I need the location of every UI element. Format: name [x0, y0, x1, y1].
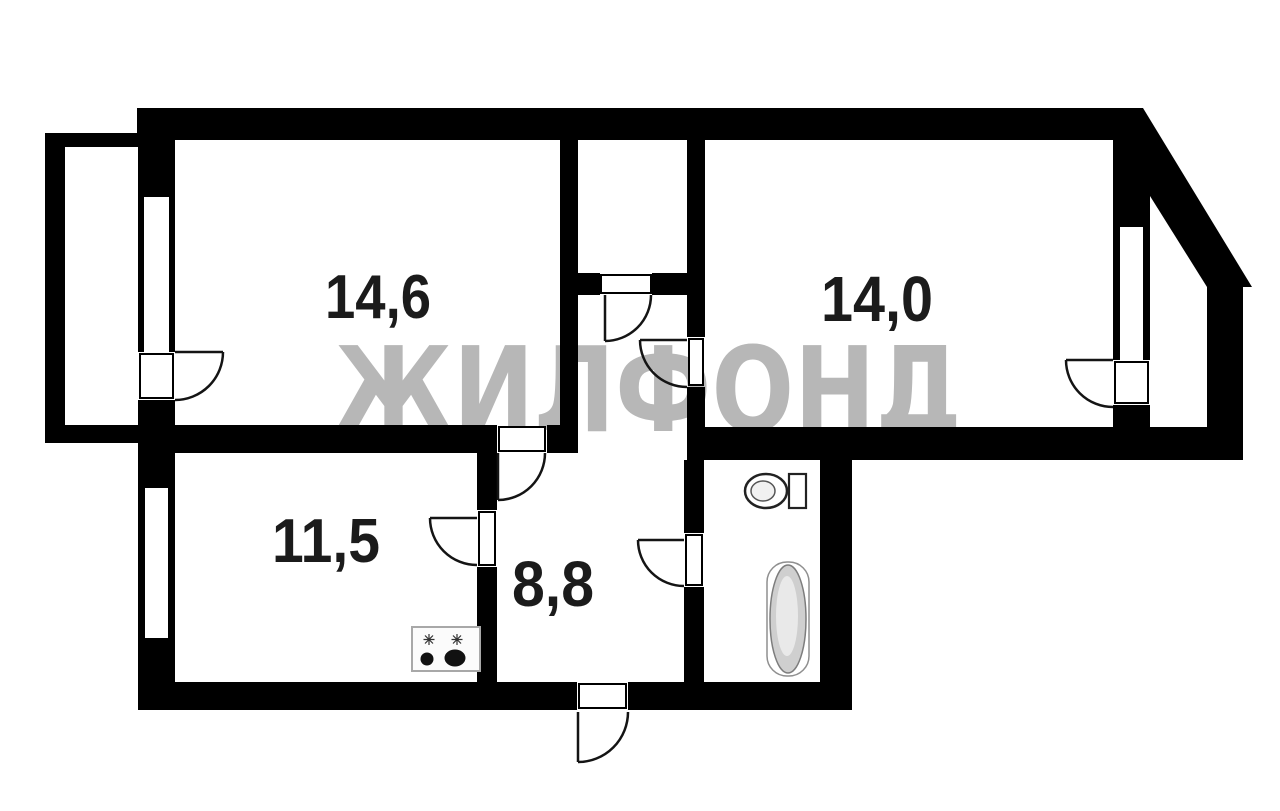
- wall-bathroom-left-b: [684, 587, 704, 682]
- door-sill-room1: [499, 427, 545, 451]
- wall-closet-b: [652, 273, 687, 295]
- wall-balcony-right-outer: [1207, 283, 1243, 460]
- wall-bathroom-right: [820, 460, 852, 710]
- bathtub-icon: [767, 562, 809, 676]
- wall-top: [137, 108, 1143, 140]
- wall-balcony-left-bottom: [45, 425, 145, 443]
- wall-balcony-left-outer: [45, 133, 65, 440]
- door-arc-balcony-right: [1066, 360, 1113, 407]
- toilet-icon: [745, 474, 806, 508]
- door-sill-entrance: [579, 684, 626, 708]
- window-room2-frame-a: [1113, 227, 1120, 360]
- wall-room1-corridor: [560, 140, 578, 437]
- door-arc-kitchen: [430, 518, 477, 565]
- room-area-label-8-8: 8,8: [512, 548, 594, 620]
- wall-closet-a: [578, 273, 600, 295]
- door-sill-balcony-right: [1115, 362, 1148, 403]
- room-area-label-11-5: 11,5: [272, 507, 380, 576]
- wall-kitchen-right-a: [477, 453, 497, 510]
- wall-bottom-a: [138, 682, 577, 710]
- floor-plan-drawing: ЖИЛФОНД: [0, 0, 1280, 811]
- room-area-label-14-0: 14,0: [821, 263, 933, 335]
- wall-room2-bottom: [687, 427, 1240, 460]
- door-sill-kitchen: [479, 512, 495, 565]
- wall-room2-right-b: [1113, 405, 1150, 427]
- wall-diagonal-corner: [1143, 108, 1252, 287]
- window-kitchen-frame-b: [168, 488, 175, 638]
- wall-corridor-room2-a: [687, 140, 705, 337]
- door-arc-balcony-left: [175, 352, 223, 400]
- floor-plan-page: ЖИЛФОНД: [0, 0, 1280, 811]
- door-sill-balcony-left: [140, 354, 173, 398]
- door-arc-bathroom: [638, 540, 684, 586]
- window-room1-frame-a: [138, 197, 144, 352]
- stove-icon: [412, 627, 480, 671]
- door-arc-entrance: [578, 712, 628, 762]
- wall-corridor-room2-b: [687, 387, 705, 427]
- door-sill-bathroom: [686, 535, 702, 585]
- wall-bathroom-left-a: [684, 460, 704, 533]
- wall-balcony-left-top: [45, 133, 138, 147]
- door-arc-room1: [498, 453, 545, 500]
- window-room1-frame-b: [169, 197, 175, 352]
- wall-bottom-b: [628, 682, 852, 710]
- window-kitchen-frame-a: [138, 488, 145, 638]
- room-area-label-14-6: 14,6: [325, 263, 431, 332]
- wall-kitchen-top-a: [138, 425, 497, 453]
- wall-room2-right-a: [1113, 140, 1150, 227]
- door-sill-room2: [689, 339, 703, 385]
- wall-left-a: [138, 140, 175, 197]
- door-sill-closet: [601, 275, 651, 293]
- window-room2-frame-b: [1143, 227, 1150, 360]
